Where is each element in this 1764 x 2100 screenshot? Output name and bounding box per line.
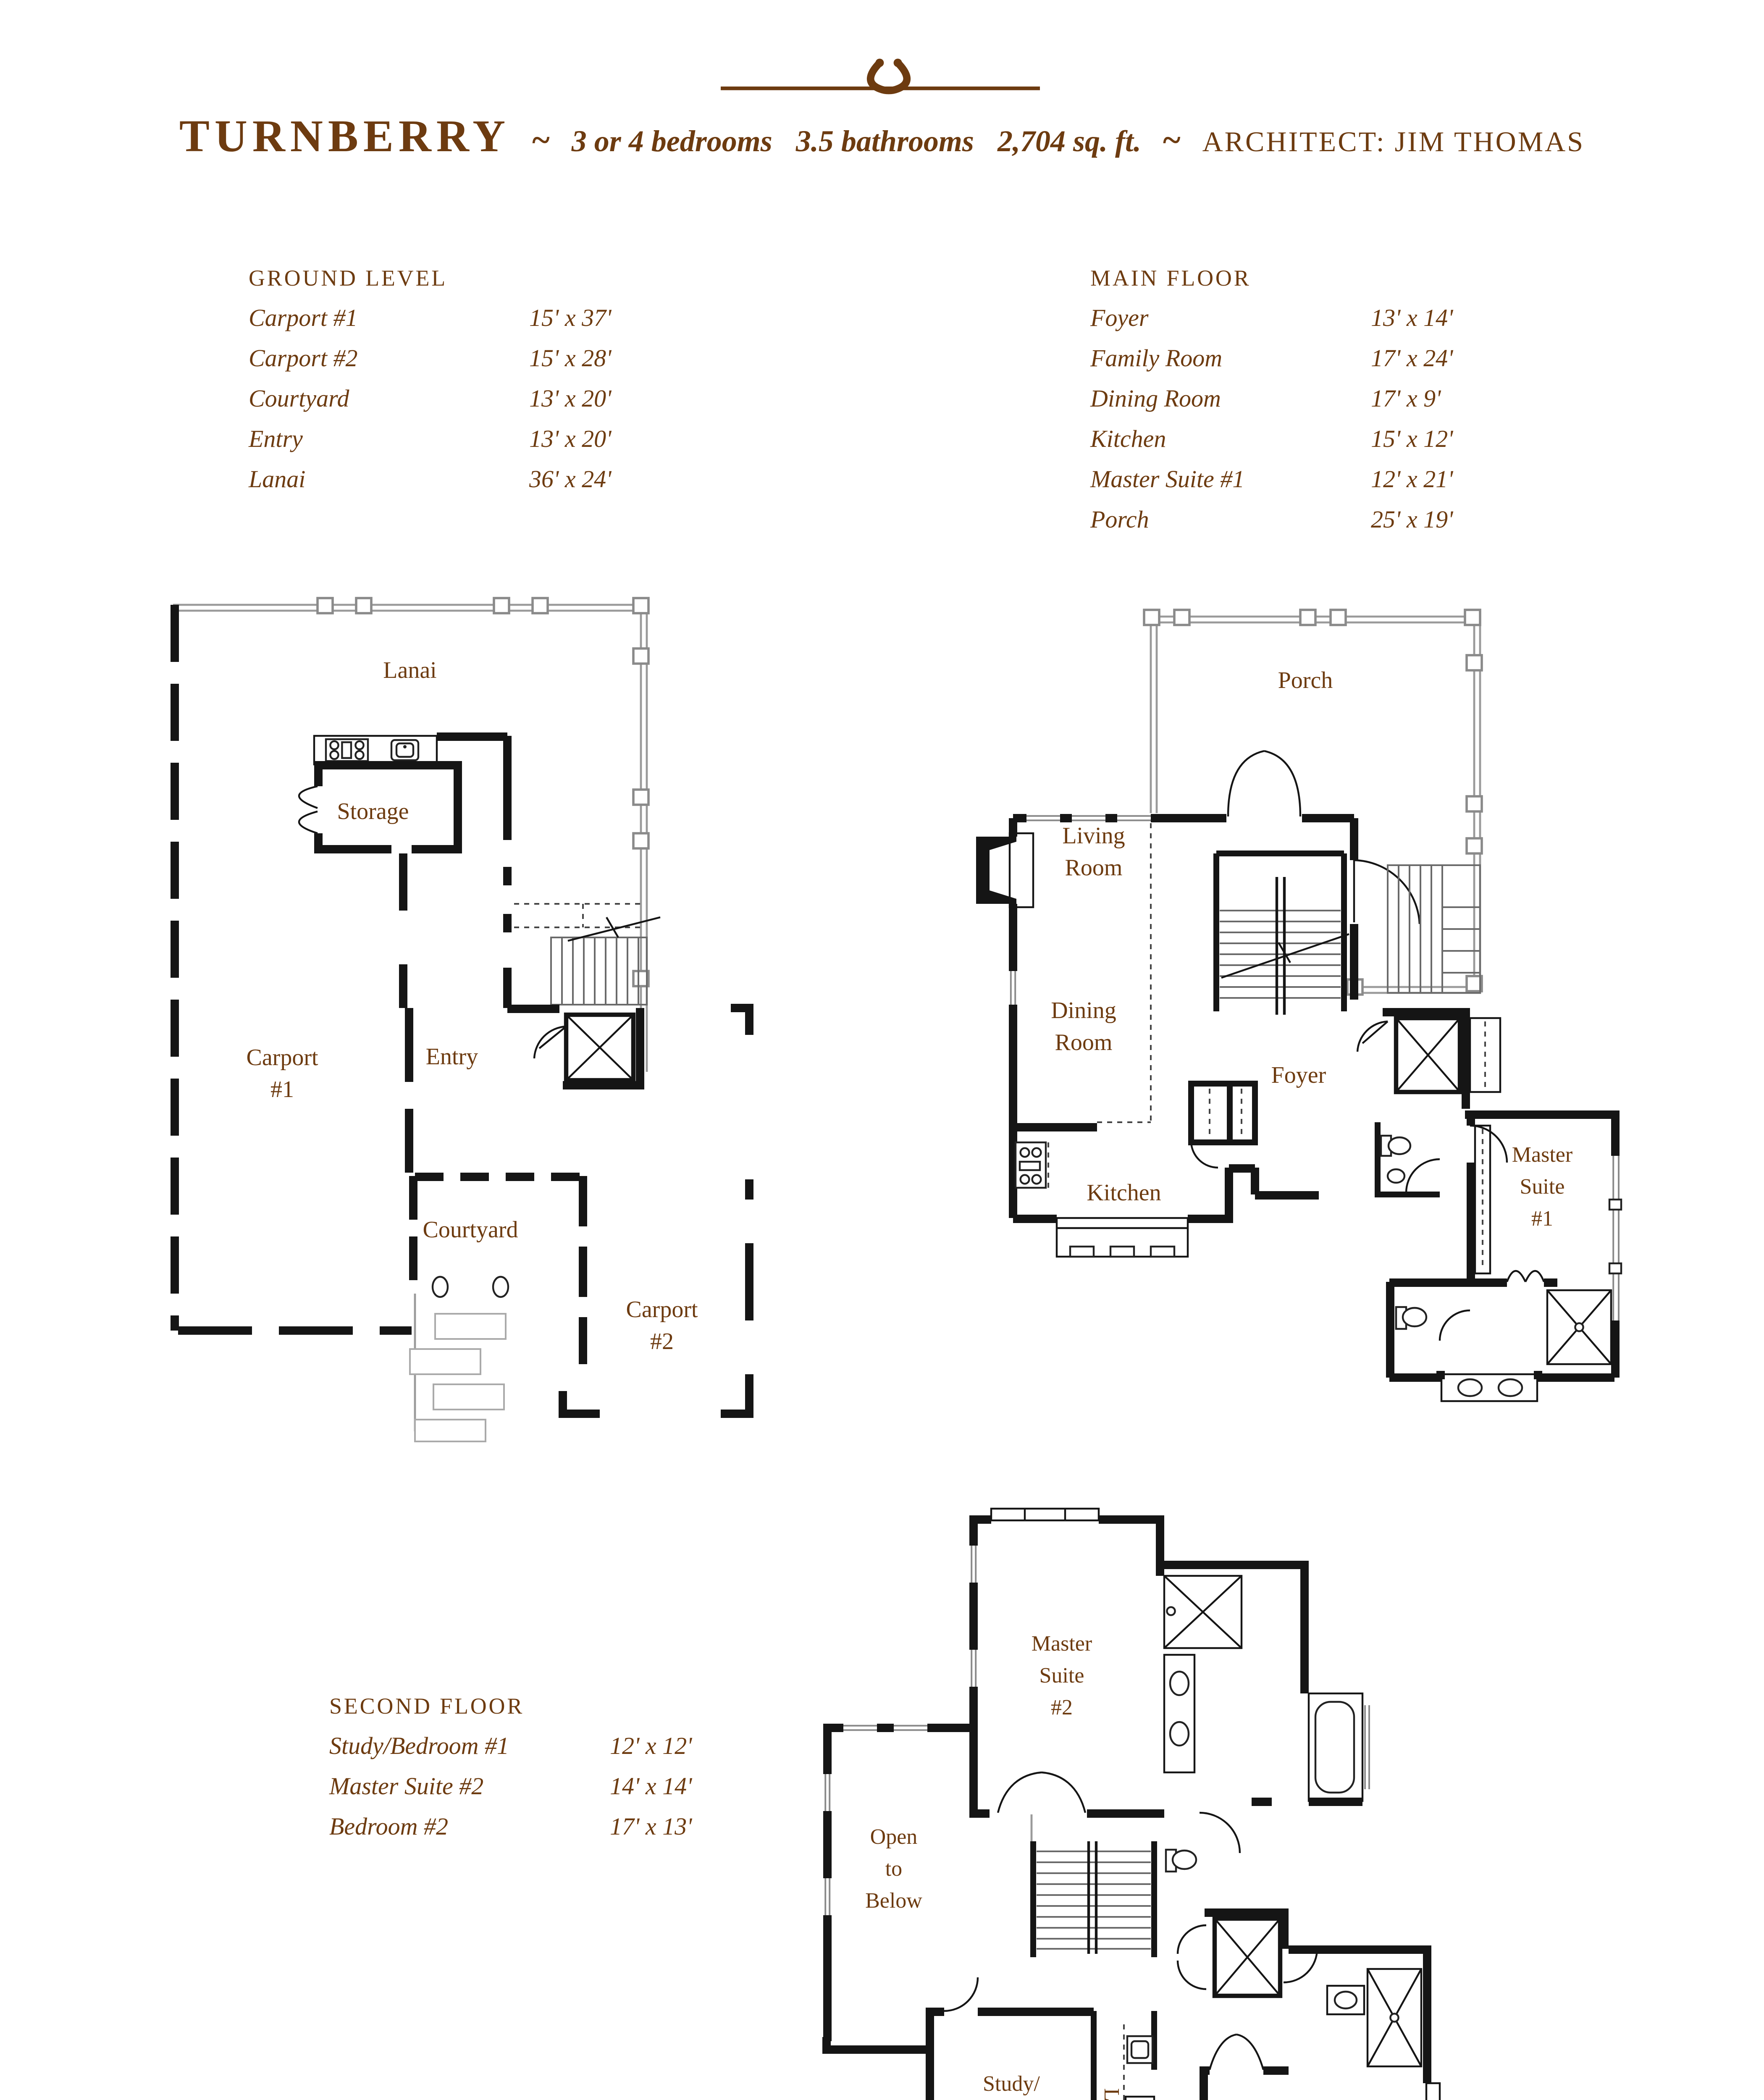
room-label-master-suite1: MasterSuite#1 (1512, 1138, 1572, 1234)
double-door-leaf (299, 811, 318, 833)
room-label-entry: Entry (426, 1042, 478, 1074)
title-row: TURNBERRY ~ 3 or 4 bedrooms 3.5 bathroom… (0, 111, 1764, 163)
table-row: Courtyard13' x 20' (249, 386, 612, 427)
elevator (1357, 1011, 1500, 1109)
shower (1547, 1290, 1611, 1364)
courtyard-planter (433, 1277, 448, 1297)
study-bedroom1-walls (926, 1977, 1200, 2100)
double-door-leaf (1210, 2034, 1236, 2070)
double-door-leaf (299, 786, 318, 808)
tilde-separator-2: ~ (1163, 123, 1181, 161)
table-row: Dining Room17' x 9' (1090, 386, 1453, 427)
room-label-dining-room: DiningRoom (1051, 996, 1116, 1060)
table-row: Family Room17' x 24' (1090, 346, 1453, 386)
toilet-icon (1166, 1850, 1196, 1872)
room-label-kitchen: Kitchen (1087, 1179, 1161, 1210)
double-door-leaf (998, 1772, 1042, 1813)
top-wall-with-windows (1013, 816, 1354, 820)
table-row: Carport #115' x 37' (249, 306, 612, 346)
stepping-stones (410, 1314, 506, 1441)
table-row: Carport #215' x 28' (249, 346, 612, 386)
table-row: Lanai36' x 24' (249, 467, 612, 507)
pantry-closets (1191, 1084, 1255, 1168)
sink-icon (1388, 1169, 1404, 1183)
courtyard-planter (493, 1277, 508, 1297)
room-label-porch: Porch (1278, 666, 1333, 698)
fireplace (976, 833, 1033, 907)
bathtub-icon (1309, 1693, 1369, 1801)
stove-icon (1016, 1142, 1046, 1188)
door-swing (1178, 1925, 1206, 1954)
room-label-storage: Storage (337, 797, 409, 829)
plan-name: TURNBERRY (179, 111, 510, 163)
stove-icon (326, 739, 368, 761)
kitchen (1013, 1127, 1319, 1257)
room-label-laundry: Laundry (1096, 2088, 1128, 2100)
elevator (1178, 1912, 1289, 1996)
plan-sheet: TURNBERRY ~ 3 or 4 bedrooms 3.5 bathroom… (0, 0, 1764, 2100)
table-heading: SECOND FLOOR (329, 1693, 692, 1734)
tilde-separator: ~ (532, 123, 550, 161)
door-swing (1440, 1310, 1470, 1341)
deck-dotted-lines (514, 904, 643, 927)
room-label-carport2: Carport#2 (626, 1295, 698, 1359)
table-heading: MAIN FLOOR (1090, 265, 1453, 306)
second-floor-table: SECOND FLOOR Study/Bedroom #112' x 12' M… (329, 1693, 692, 1855)
table-row: Master Suite #112' x 21' (1090, 467, 1453, 507)
rear-steps (1388, 865, 1480, 993)
toilet-icon (1381, 1136, 1410, 1156)
table-row: Bedroom #217' x 13' (329, 1814, 692, 1855)
table-row: Entry13' x 20' (249, 427, 612, 467)
table-row: Kitchen15' x 12' (1090, 427, 1453, 467)
stairs (1216, 853, 1349, 1015)
horseshoe-ornament (717, 57, 1047, 94)
spec-bedrooms: 3 or 4 bedrooms (572, 124, 772, 160)
table-row: Foyer13' x 14' (1090, 306, 1453, 346)
washer-icon (1126, 2097, 1154, 2100)
kitchen-bay-window (1057, 1218, 1188, 1257)
exterior-walls (175, 605, 412, 1331)
horseshoe-icon (871, 62, 907, 91)
closet-strip (1475, 1126, 1490, 1273)
french-doors-to-porch (1228, 751, 1300, 816)
vanity-double-sink (1436, 1371, 1542, 1401)
plan-specs: 3 or 4 bedrooms 3.5 bathrooms 2,704 sq. … (572, 124, 1141, 160)
window-bump (991, 1509, 1099, 1520)
sink-icon (1327, 1986, 1364, 2014)
room-label-open-to-below: OpentoBelow (865, 1820, 922, 1916)
ground-level-table: GROUND LEVEL Carport #115' x 37' Carport… (249, 265, 612, 507)
shower (1368, 1969, 1421, 2066)
stairs (1033, 1841, 1154, 1957)
double-door-leaf (1042, 1772, 1085, 1813)
second-floor-plan (776, 1445, 1495, 2100)
open-to-below-walls (823, 1726, 1032, 2050)
room-label-study-bedroom1: Study/Bedroom#1 (971, 2067, 1052, 2100)
main-floor-table: MAIN FLOOR Foyer13' x 14' Family Room17'… (1090, 265, 1453, 548)
laundry-sink-icon (1127, 2036, 1152, 2063)
summer-kitchen (314, 736, 437, 764)
door-swing (1191, 1142, 1218, 1168)
room-label-living-room: LivingRoom (1062, 822, 1125, 885)
table-row: Study/Bedroom #112' x 12' (329, 1734, 692, 1774)
door-swing (1406, 1159, 1440, 1193)
powder-room (1378, 1122, 1440, 1194)
horseshoe-tip-right (894, 59, 902, 67)
room-label-courtyard: Courtyard (423, 1215, 518, 1247)
door-swing (1178, 1961, 1206, 1989)
door-swing (944, 1977, 978, 2011)
bay-window-right (1426, 2083, 1440, 2100)
door-swing (1507, 1271, 1525, 1282)
laundry-room (1094, 2011, 1154, 2100)
shower (1164, 1576, 1242, 1648)
room-label-master-suite2: MasterSuite#2 (1032, 1627, 1092, 1723)
door-swing (1200, 1813, 1240, 1853)
architect-credit: ARCHITECT: JIM THOMAS (1202, 126, 1585, 160)
table-row: Master Suite #214' x 14' (329, 1774, 692, 1814)
elevator (507, 1008, 640, 1085)
master-bath2 (1159, 1564, 1369, 1872)
table-row: Porch25' x 19' (1090, 507, 1453, 548)
table-heading: GROUND LEVEL (249, 265, 612, 306)
toilet-icon (1396, 1307, 1426, 1329)
sink-icon (391, 740, 418, 760)
spec-area: 2,704 sq. ft. (997, 124, 1141, 160)
stairs (551, 917, 660, 1005)
room-label-carport1: Carport#1 (246, 1043, 318, 1107)
horseshoe-tip-left (875, 59, 884, 67)
vanity-double-sink (1164, 1655, 1194, 1772)
master-bath1 (1389, 1282, 1614, 1401)
room-label-lanai: Lanai (383, 656, 437, 688)
bath3 (1284, 1949, 1431, 2070)
double-door-leaf (1236, 2034, 1263, 2070)
spec-bathrooms: 3.5 bathrooms (796, 124, 974, 160)
room-label-foyer: Foyer (1271, 1061, 1326, 1093)
door-swing (1525, 1271, 1544, 1282)
